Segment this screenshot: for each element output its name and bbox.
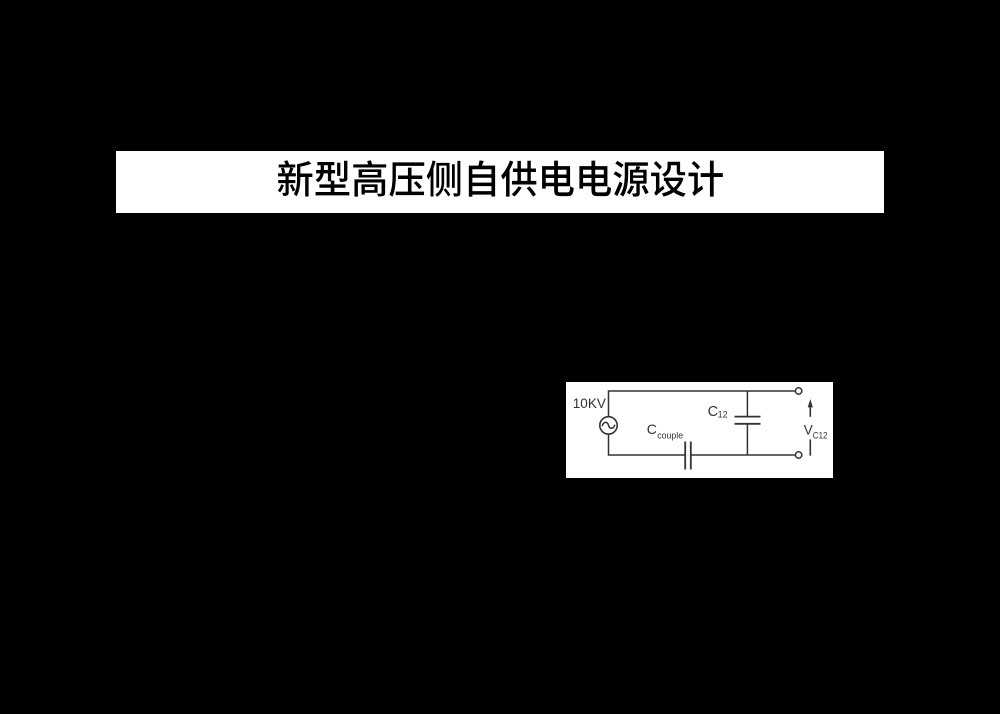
svg-text:couple: couple [657, 431, 683, 441]
svg-text:C: C [647, 421, 657, 437]
svg-text:12: 12 [718, 409, 728, 419]
svg-text:C12: C12 [813, 430, 828, 440]
svg-text:10KV: 10KV [573, 396, 606, 411]
svg-text:C: C [708, 404, 718, 420]
